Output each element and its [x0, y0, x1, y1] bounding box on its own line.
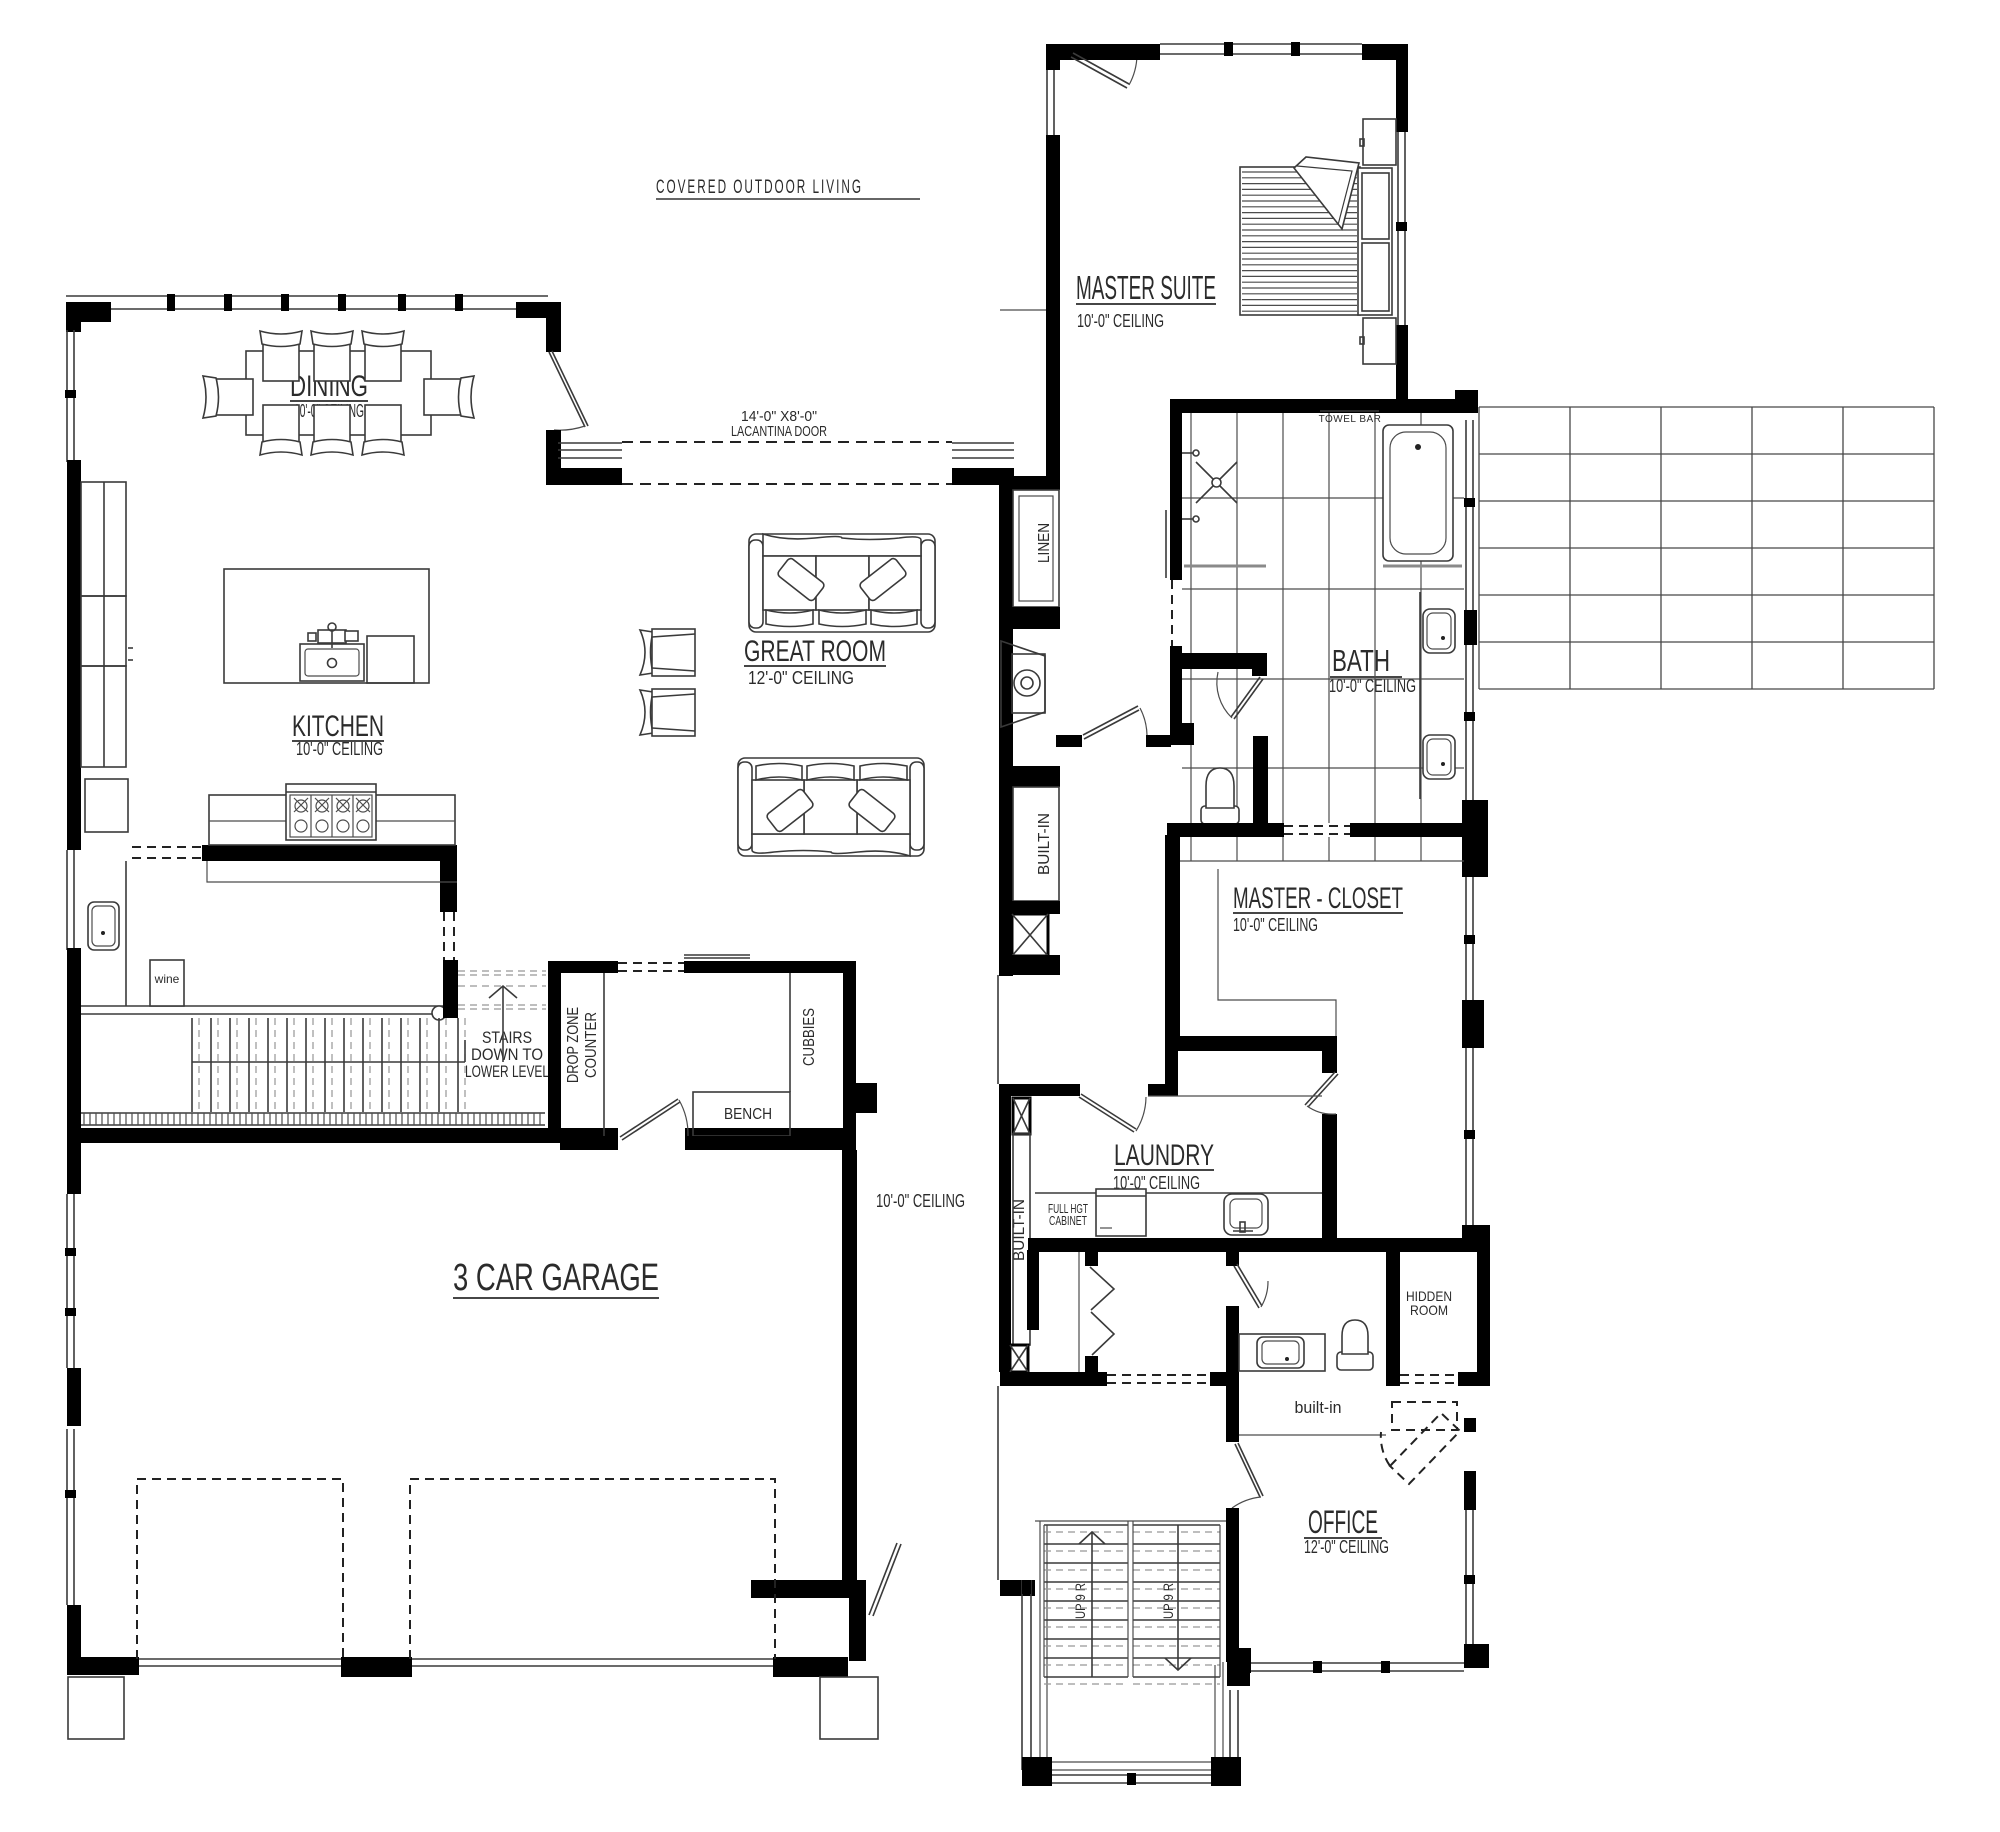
svg-text:MASTER SUITE: MASTER SUITE — [1076, 269, 1216, 306]
svg-text:wine: wine — [154, 972, 180, 986]
svg-text:CUBBIES: CUBBIES — [801, 1008, 818, 1066]
svg-text:DROP ZONE: DROP ZONE — [565, 1007, 582, 1083]
svg-text:COUNTER: COUNTER — [583, 1012, 600, 1078]
svg-text:12'-0" CEILING: 12'-0" CEILING — [1304, 1537, 1389, 1557]
svg-text:CABINET: CABINET — [1049, 1213, 1087, 1228]
svg-text:LACANTINA DOOR: LACANTINA DOOR — [731, 423, 827, 440]
svg-text:3 CAR GARAGE: 3 CAR GARAGE — [453, 1257, 659, 1299]
svg-text:BUILT-IN: BUILT-IN — [1036, 813, 1053, 875]
svg-text:10'-0" CEILING: 10'-0" CEILING — [1233, 915, 1318, 935]
svg-text:10'-0" CEILING: 10'-0" CEILING — [296, 739, 383, 759]
svg-text:GREAT ROOM: GREAT ROOM — [744, 635, 886, 668]
svg-text:LAUNDRY: LAUNDRY — [1114, 1139, 1214, 1172]
svg-text:MASTER - CLOSET: MASTER - CLOSET — [1233, 882, 1403, 915]
svg-text:LINEN: LINEN — [1036, 523, 1053, 563]
svg-text:BENCH: BENCH — [724, 1106, 772, 1123]
svg-text:OFFICE: OFFICE — [1308, 1504, 1378, 1540]
svg-text:built-in: built-in — [1295, 1398, 1342, 1417]
svg-text:COVERED OUTDOOR LIVING: COVERED OUTDOOR LIVING — [656, 177, 863, 198]
svg-text:ROOM: ROOM — [1410, 1302, 1448, 1318]
svg-text:10'-0" CEILING: 10'-0" CEILING — [1077, 311, 1164, 331]
svg-text:10'-0" CEILING: 10'-0" CEILING — [876, 1191, 965, 1211]
svg-text:LOWER LEVEL: LOWER LEVEL — [465, 1062, 549, 1081]
svg-text:BATH: BATH — [1332, 643, 1390, 678]
svg-text:12'-0" CEILING: 12'-0" CEILING — [748, 668, 854, 688]
svg-text:TOWEL BAR: TOWEL BAR — [1319, 414, 1382, 425]
